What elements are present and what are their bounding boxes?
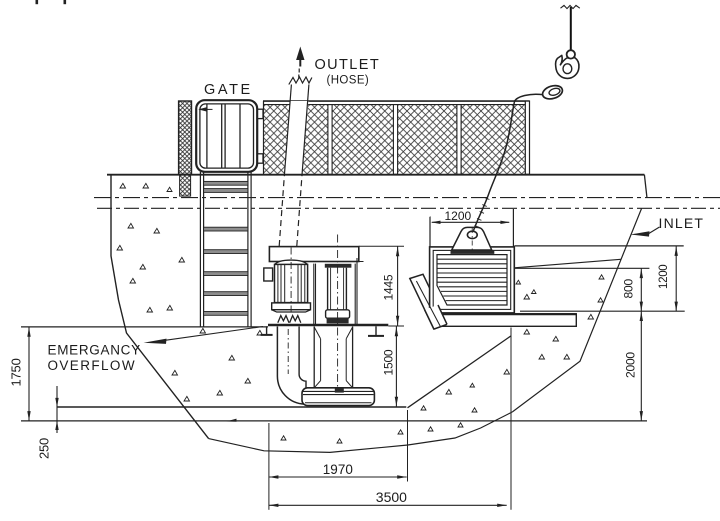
svg-text:3500: 3500: [376, 489, 407, 505]
svg-text:800: 800: [622, 279, 636, 299]
svg-text:INLET: INLET: [659, 215, 705, 231]
svg-text:1200: 1200: [445, 209, 472, 223]
svg-text:1970: 1970: [323, 462, 353, 477]
svg-text:1200: 1200: [658, 265, 670, 289]
svg-text:OUTLET: OUTLET: [315, 57, 381, 73]
svg-text:(HOSE): (HOSE): [327, 75, 370, 87]
svg-text:1445: 1445: [382, 274, 396, 300]
svg-text:1750: 1750: [9, 358, 24, 386]
svg-text:GATE: GATE: [204, 82, 253, 98]
svg-text:250: 250: [37, 438, 52, 459]
svg-text:2000: 2000: [624, 352, 638, 378]
svg-text:EMERGANCY: EMERGANCY: [48, 343, 141, 358]
svg-text:1500: 1500: [382, 349, 396, 375]
svg-text:OVERFLOW: OVERFLOW: [48, 358, 136, 373]
